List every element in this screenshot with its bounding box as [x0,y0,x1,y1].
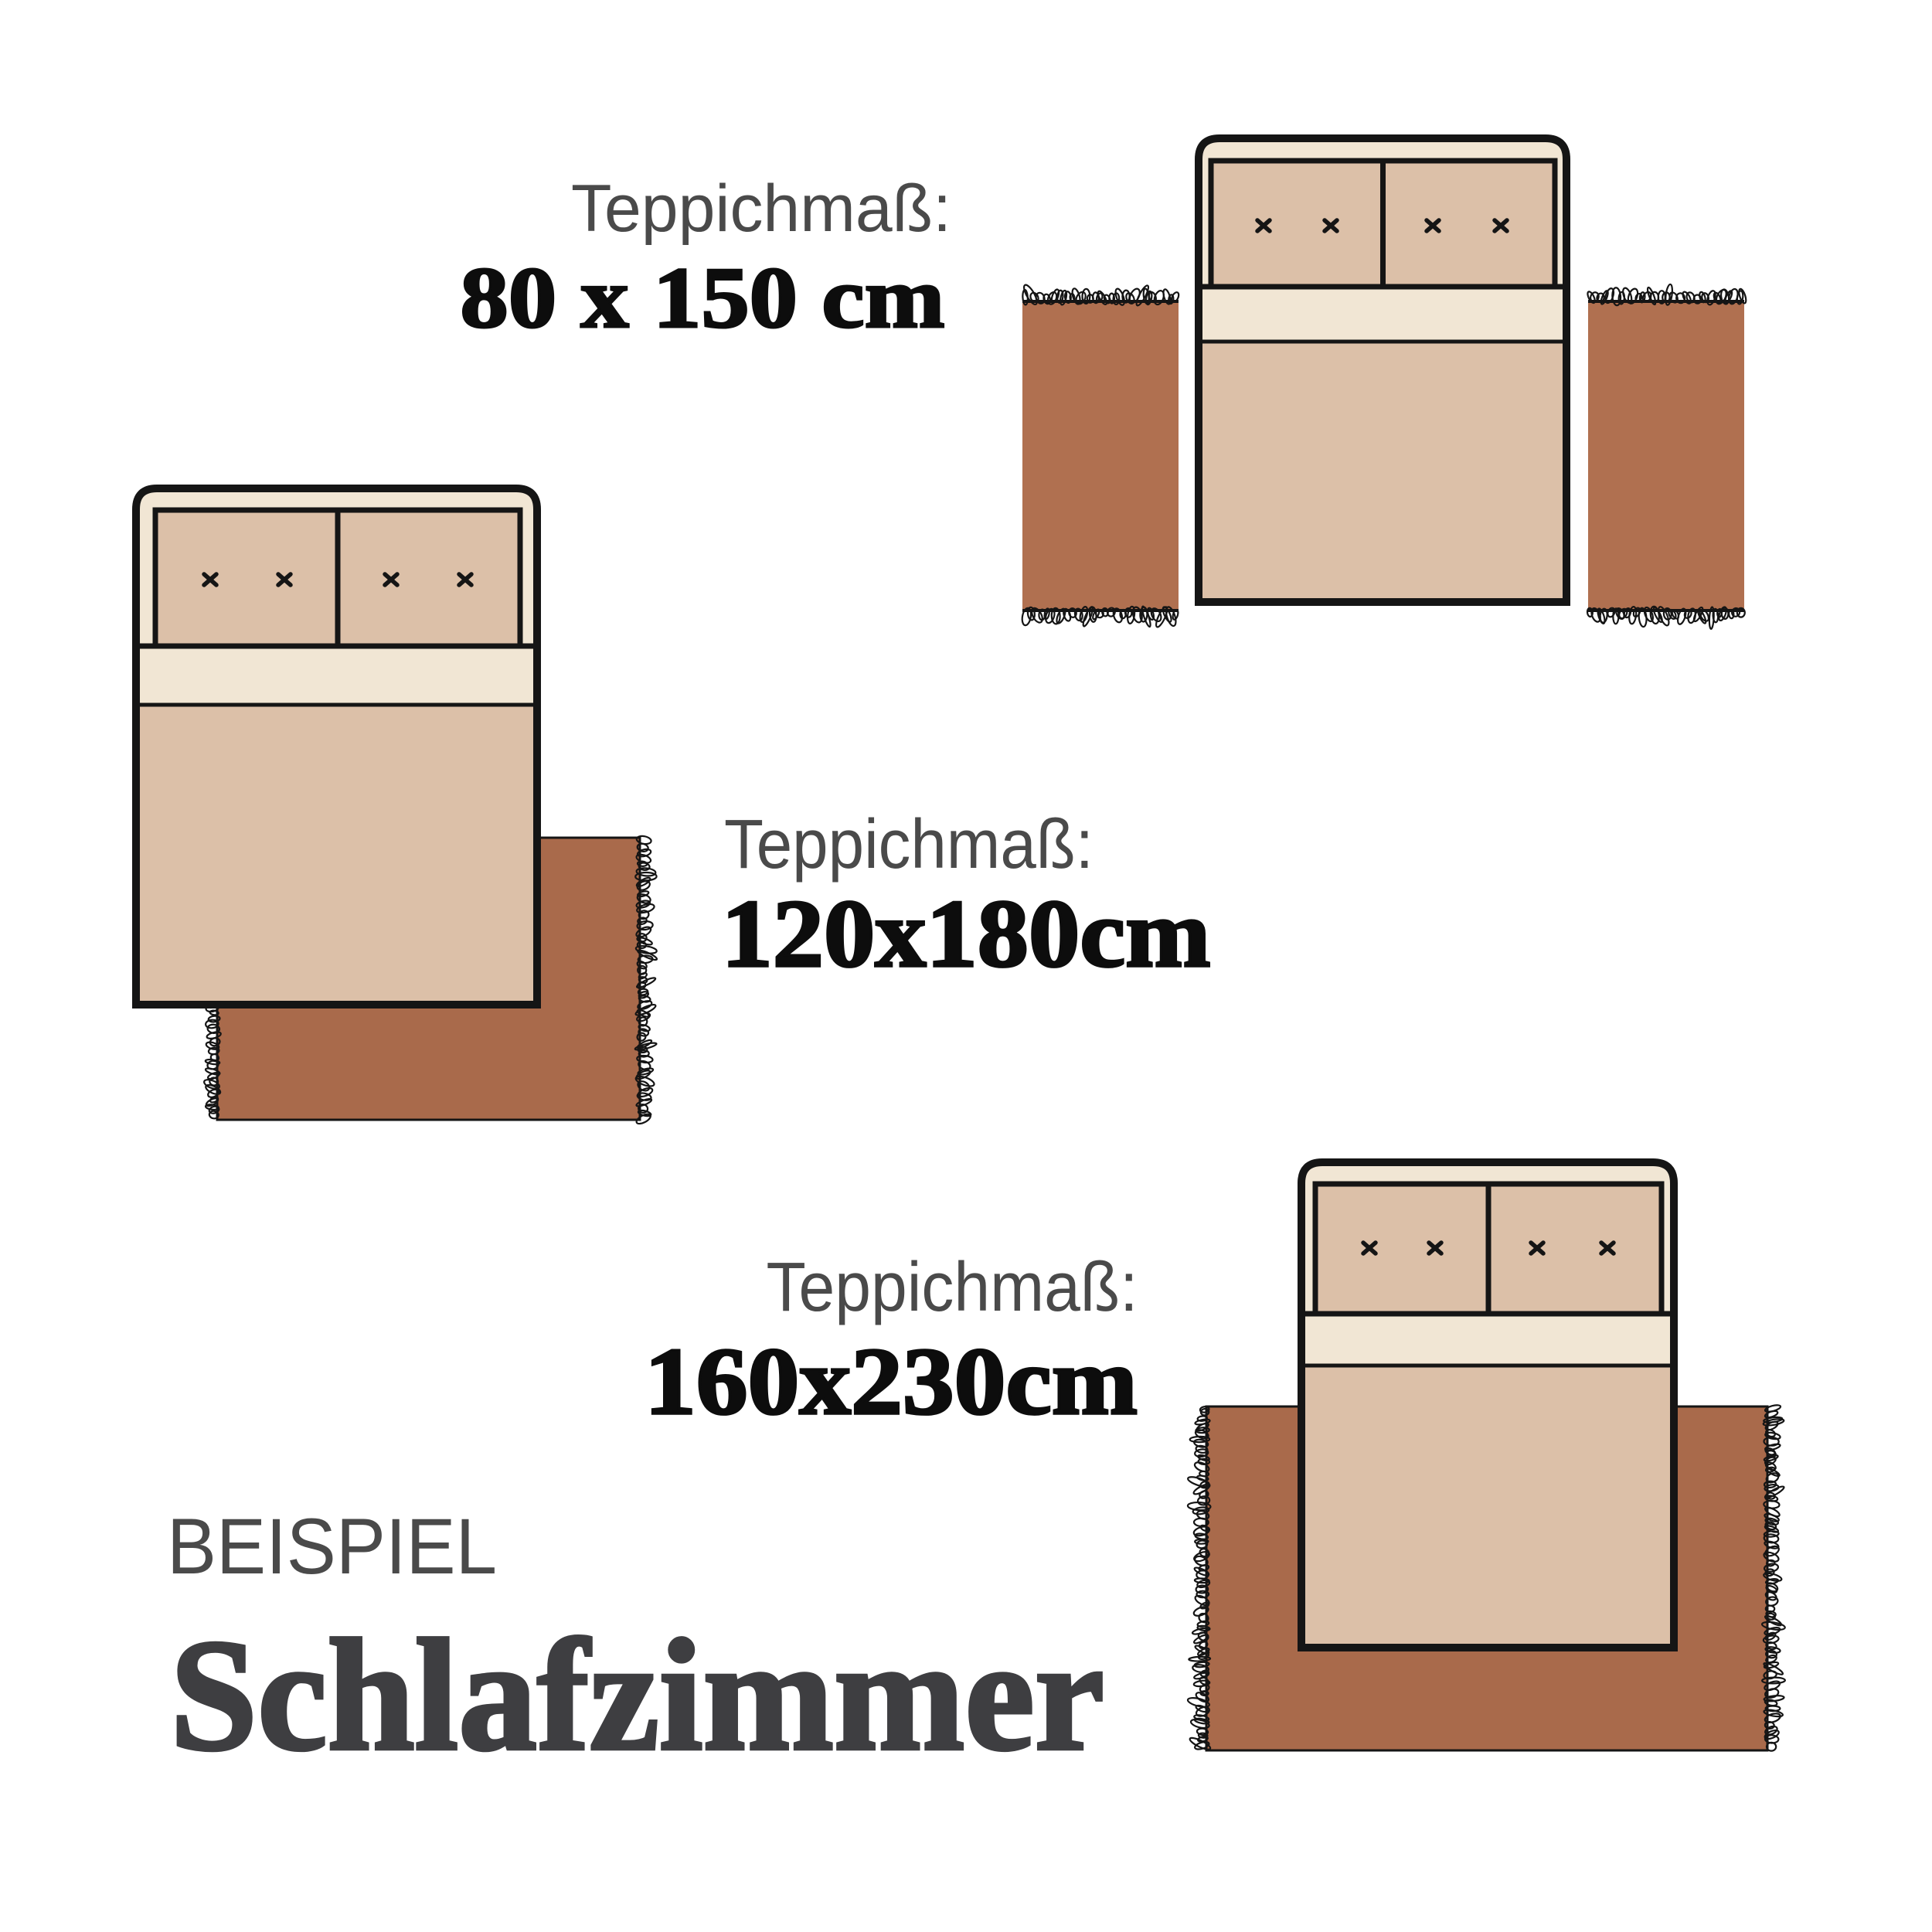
svg-text:120x180cm: 120x180cm [722,881,1211,988]
svg-text:80 x 150 cm: 80 x 150 cm [461,250,945,346]
svg-text:160x230cm: 160x230cm [645,1328,1138,1434]
svg-text:BEISPIEL: BEISPIEL [167,1502,497,1590]
svg-text:Teppichmaß:: Teppichmaß: [571,172,951,246]
svg-text:Schlafzimmer: Schlafzimmer [170,1607,1104,1784]
svg-text:Teppichmaß:: Teppichmaß: [767,1249,1138,1326]
svg-text:Teppichmaß:: Teppichmaß: [724,806,1094,883]
